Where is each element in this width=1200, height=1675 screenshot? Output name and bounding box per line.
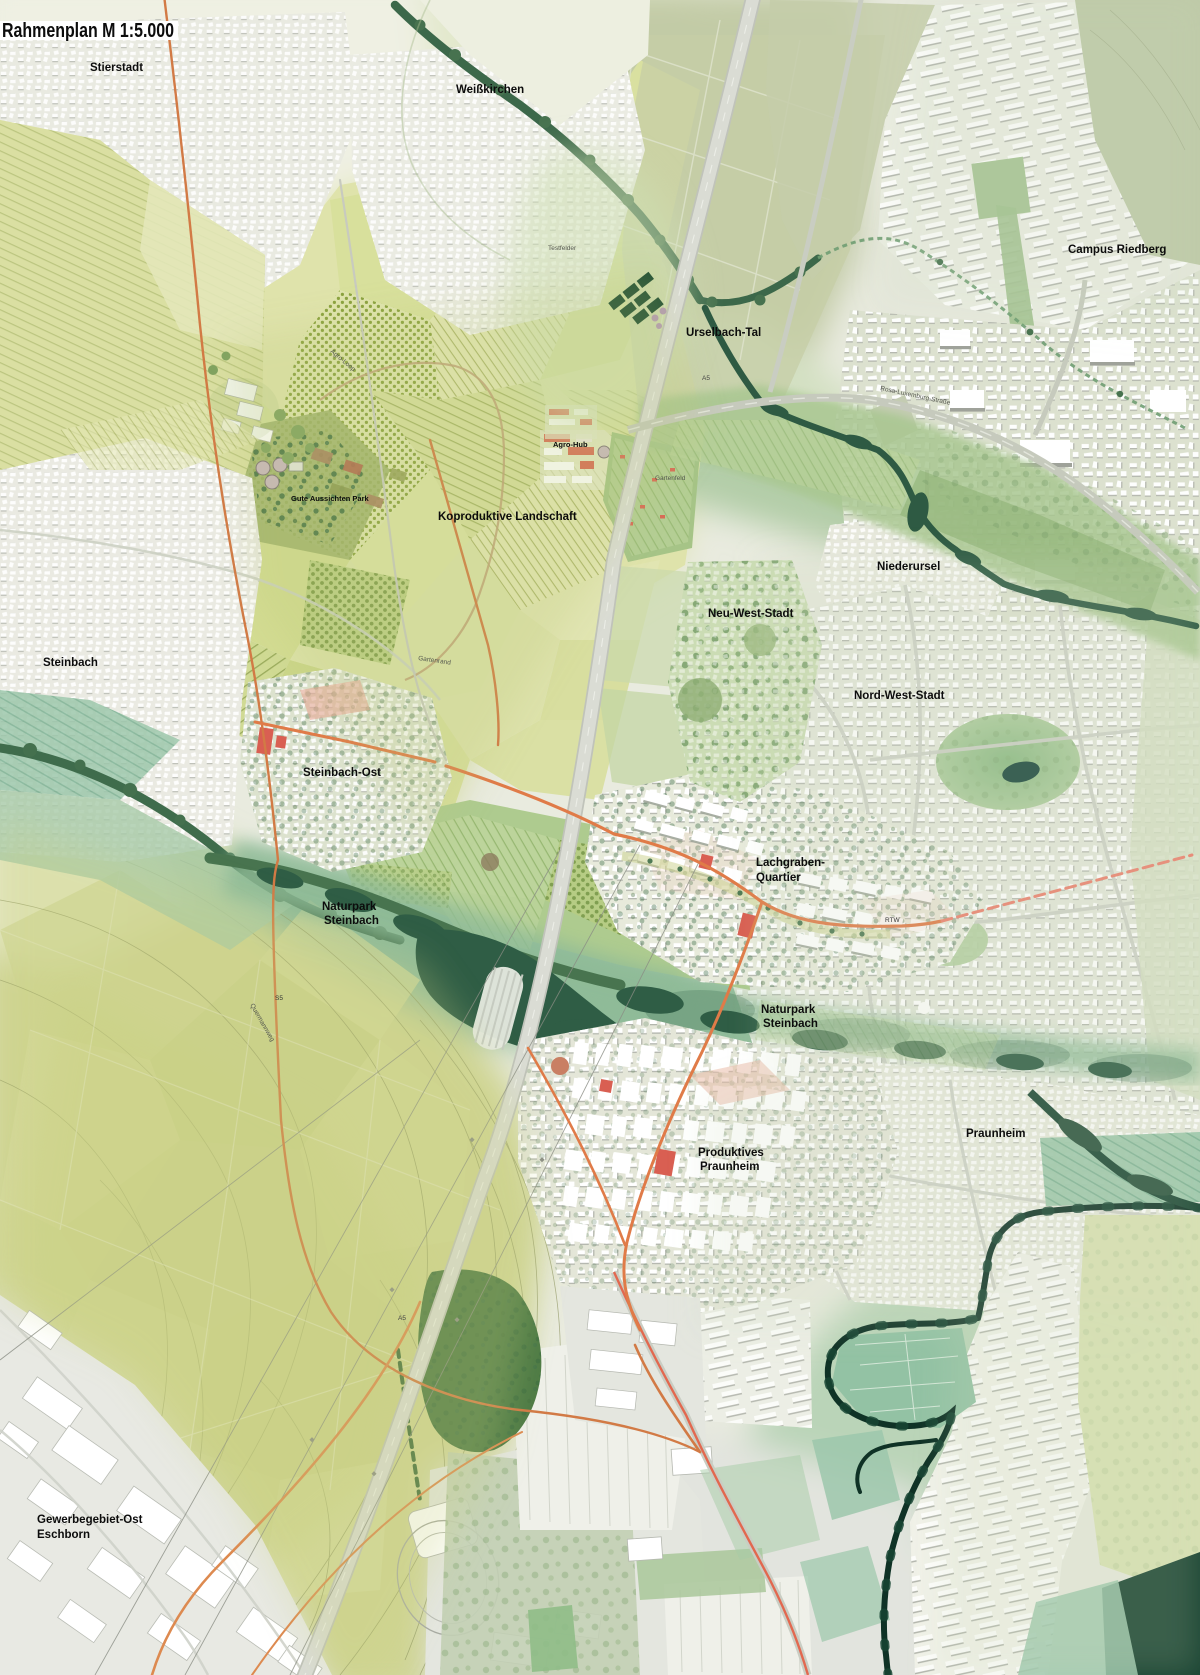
svg-text:Nord-West-Stadt: Nord-West-Stadt: [854, 690, 945, 702]
svg-text:Urselbach-Tal: Urselbach-Tal: [686, 327, 761, 339]
svg-text:Steinbach: Steinbach: [324, 915, 379, 927]
svg-text:Koproduktive Landschaft: Koproduktive Landschaft: [438, 511, 577, 523]
svg-text:Weißkirchen: Weißkirchen: [456, 84, 524, 96]
svg-text:RTW: RTW: [885, 917, 901, 924]
svg-text:Naturpark: Naturpark: [761, 1004, 816, 1016]
svg-text:Steinbach: Steinbach: [763, 1018, 818, 1030]
svg-text:Praunheim: Praunheim: [966, 1128, 1025, 1140]
svg-text:Gewerbegebiet-Ost: Gewerbegebiet-Ost: [37, 1514, 143, 1526]
svg-text:Lachgraben-: Lachgraben-: [756, 857, 825, 869]
svg-text:Eschborn: Eschborn: [37, 1529, 90, 1541]
svg-text:Agro-Hub: Agro-Hub: [553, 440, 588, 449]
svg-text:A5: A5: [398, 1315, 406, 1322]
svg-text:Stierstadt: Stierstadt: [90, 62, 143, 74]
svg-text:S5: S5: [275, 995, 283, 1002]
svg-text:Neu-West-Stadt: Neu-West-Stadt: [708, 608, 794, 620]
svg-text:Naturpark: Naturpark: [322, 901, 377, 913]
svg-text:Steinbach: Steinbach: [43, 657, 98, 669]
svg-text:Praunheim: Praunheim: [700, 1161, 759, 1173]
svg-text:Gute Aussichten Park: Gute Aussichten Park: [291, 494, 369, 503]
svg-text:Gartenfeld: Gartenfeld: [655, 475, 686, 482]
svg-text:Steinbach-Ost: Steinbach-Ost: [303, 767, 381, 779]
svg-text:Testfelder: Testfelder: [548, 245, 577, 252]
svg-text:Rahmenplan M 1:5.000: Rahmenplan M 1:5.000: [2, 20, 174, 42]
svg-text:Quartier: Quartier: [756, 872, 801, 884]
svg-text:A5: A5: [702, 375, 710, 382]
svg-text:Niederursel: Niederursel: [877, 561, 940, 573]
svg-text:Campus Riedberg: Campus Riedberg: [1068, 244, 1166, 256]
svg-text:Produktives: Produktives: [698, 1147, 764, 1159]
